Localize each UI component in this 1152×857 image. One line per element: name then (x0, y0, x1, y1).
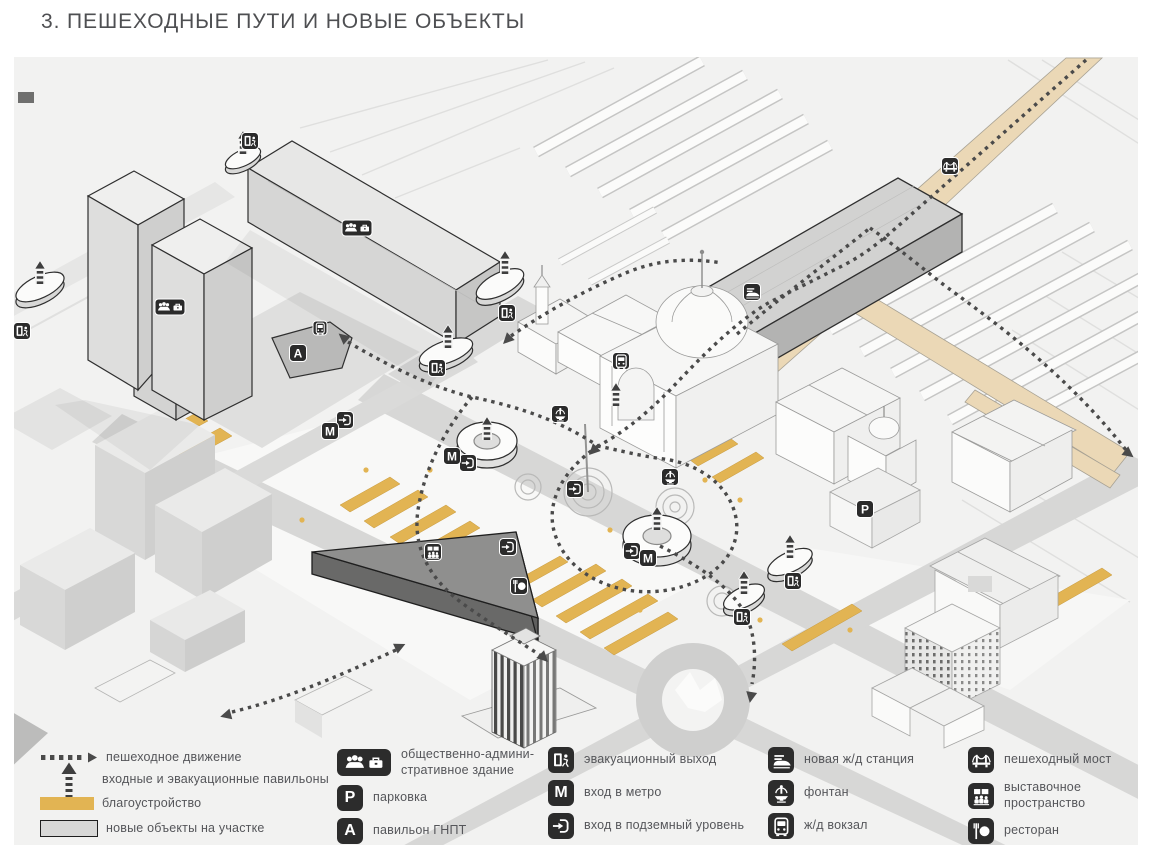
evacuation-exit-icon (785, 573, 802, 590)
evacuation-exit-icon (14, 323, 31, 340)
rail-terminal-icon (613, 353, 630, 370)
fountain-icon (662, 469, 679, 486)
underground-entrance-icon (460, 455, 477, 472)
pedestrian-bridge-icon (942, 158, 959, 175)
metro-entrance-icon: M (640, 550, 657, 567)
metro-entrance-icon: M (444, 448, 461, 465)
admin-building-icon (155, 299, 185, 315)
svg-text:M: M (325, 424, 335, 438)
evacuation-exit-icon (734, 609, 751, 626)
underground-entrance-icon (624, 543, 641, 560)
transit-stop-icon (313, 321, 327, 335)
exhibition-space-icon (425, 544, 442, 561)
poster-page: 3. ПЕШЕХОДНЫЕ ПУТИ И НОВЫЕ ОБЪЕКТЫ (0, 0, 1152, 857)
evacuation-exit-icon (429, 360, 446, 377)
roundabout (636, 643, 750, 757)
underground-entrance-icon (337, 412, 354, 429)
fountain-icon (552, 406, 569, 423)
gnpt-pavilion-icon: A (290, 345, 307, 362)
svg-text:A: A (294, 346, 303, 360)
restaurant-icon (511, 578, 528, 595)
admin-building-icon (342, 220, 372, 236)
evacuation-exit-icon (242, 133, 259, 150)
underground-entrance-icon (567, 481, 584, 498)
svg-text:M: M (643, 551, 653, 565)
new-rail-station-icon (744, 284, 761, 301)
evacuation-exit-icon (499, 305, 516, 322)
parking-icon: P (857, 501, 874, 518)
svg-text:M: M (447, 449, 457, 463)
underground-entrance-icon (500, 539, 517, 556)
metro-entrance-icon: M (322, 423, 339, 440)
svg-text:P: P (861, 502, 869, 516)
site-plan-map: M M M A P (0, 0, 1152, 857)
